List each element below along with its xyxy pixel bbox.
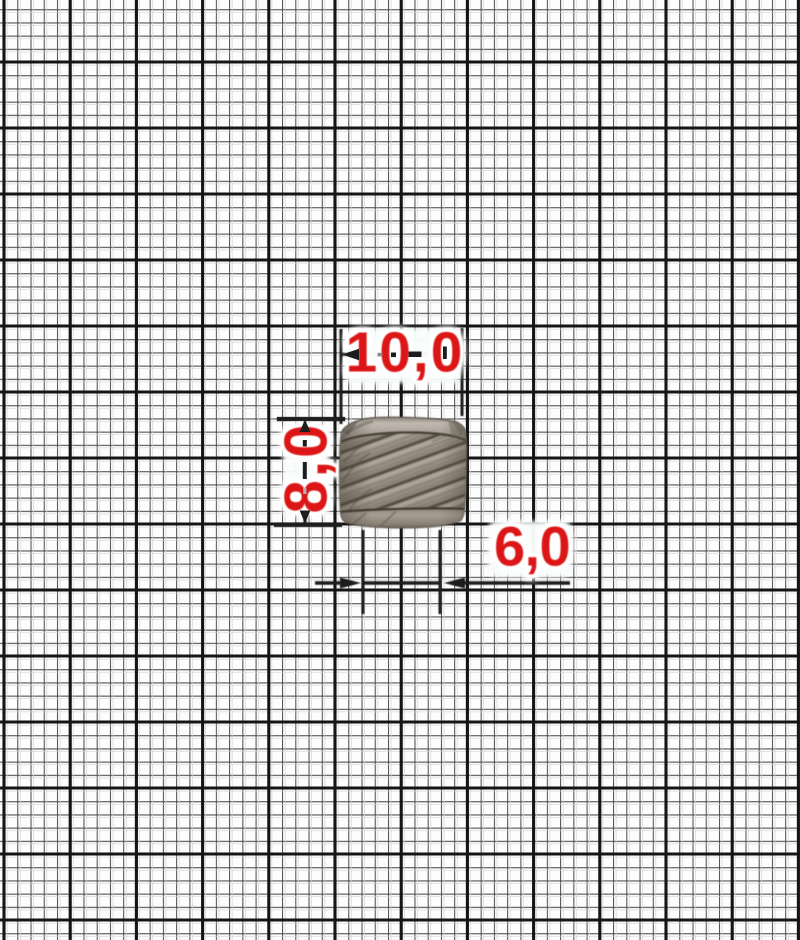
svg-text:6,0: 6,0 [494, 515, 570, 578]
